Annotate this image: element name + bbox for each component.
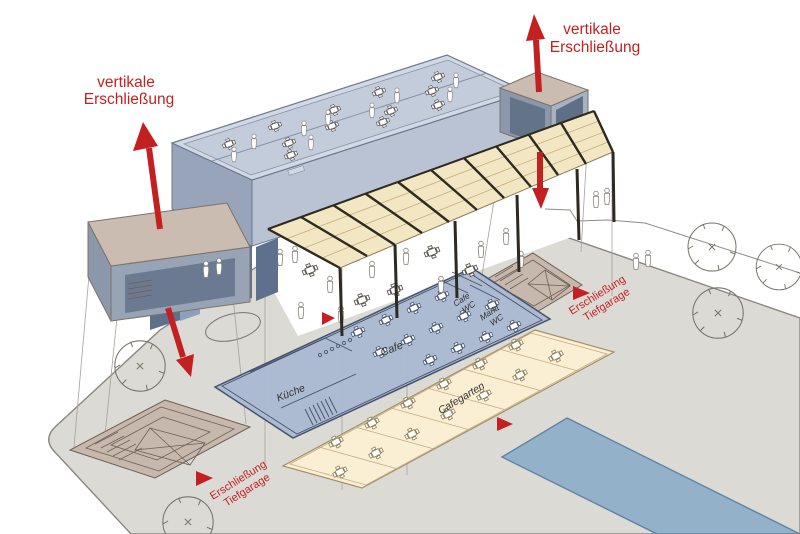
annotation-vertical-left: vertikale Erschließung [84,74,174,108]
annotation-line: vertikale [563,21,621,38]
stair-tower-left [88,203,250,321]
annotation-line: Erschließung [84,91,174,108]
architectural-diagram: vertikale Erschließung vertikale Erschli… [0,0,800,534]
annotation-line: vertikale [97,74,155,91]
annotation-vertical-right: vertikale Erschließung [550,21,640,56]
annotation-line: Erschließung [550,39,640,56]
circulation-arrow-left-up [133,122,160,229]
